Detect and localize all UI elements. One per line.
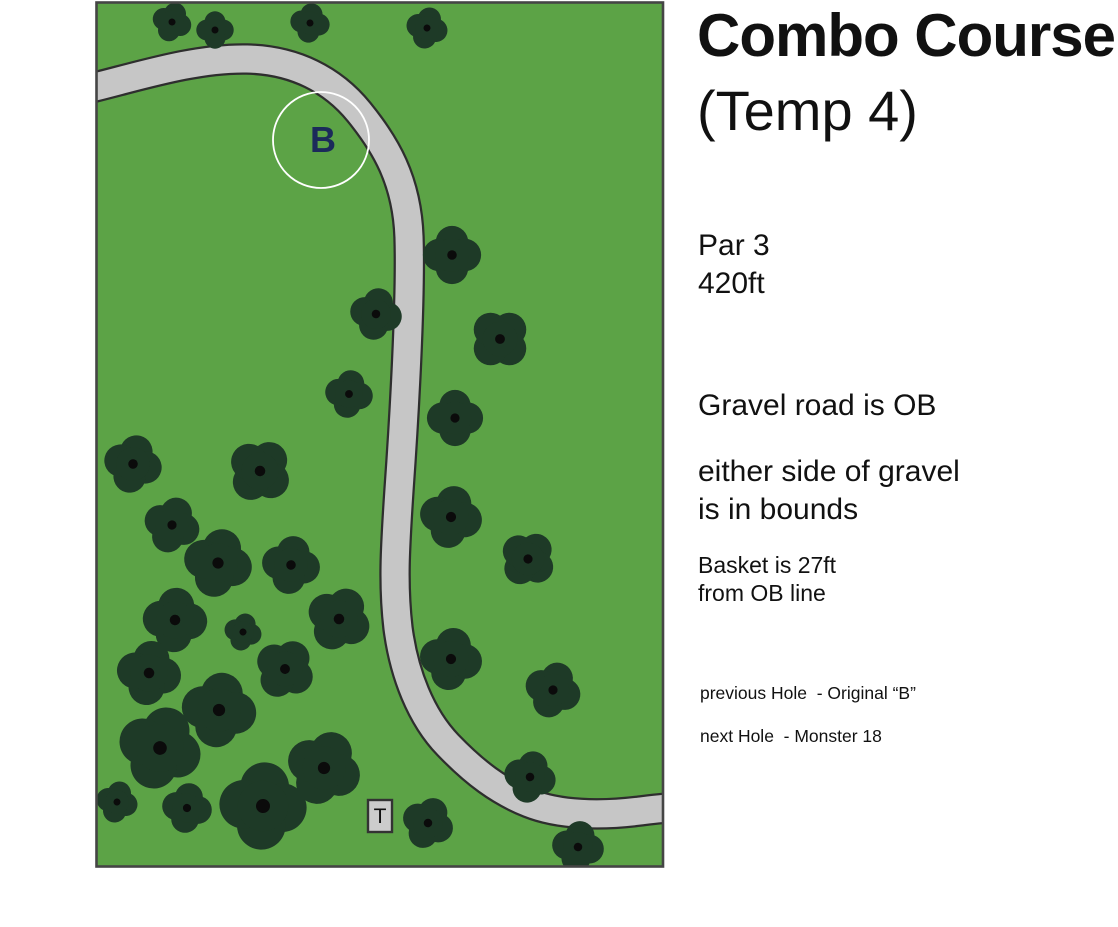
tree-trunk-dot xyxy=(450,413,459,422)
tree-trunk-dot xyxy=(447,250,457,260)
page-title: Combo Course xyxy=(697,4,1115,67)
tee-marker: T xyxy=(368,800,392,832)
page: B T Combo Course (Temp 4) Par 3 420ft Gr… xyxy=(0,0,1118,927)
rule-bounds: either side of gravel is in bounds xyxy=(698,453,960,529)
basket-note-line1: Basket is 27ft xyxy=(698,551,836,579)
par-value: Par 3 xyxy=(698,227,770,265)
distance-value: 420ft xyxy=(698,265,770,303)
rule-bounds-line1: either side of gravel xyxy=(698,453,960,491)
tee-label: T xyxy=(374,805,387,828)
basket-note: Basket is 27ft from OB line xyxy=(698,551,836,607)
basket-note-line2: from OB line xyxy=(698,579,836,607)
rule-gravel: Gravel road is OB xyxy=(698,387,936,425)
next-hole-note: next Hole - Monster 18 xyxy=(700,726,882,747)
course-map: B T xyxy=(95,0,665,868)
tree-trunk-dot xyxy=(212,27,219,34)
basket-label: B xyxy=(310,119,336,160)
rule-bounds-line2: is in bounds xyxy=(698,491,960,529)
previous-hole-note: previous Hole - Original “B” xyxy=(700,683,916,704)
hole-stats: Par 3 420ft xyxy=(698,227,770,303)
page-subtitle: (Temp 4) xyxy=(697,82,918,141)
course-map-container: B T xyxy=(95,0,665,868)
